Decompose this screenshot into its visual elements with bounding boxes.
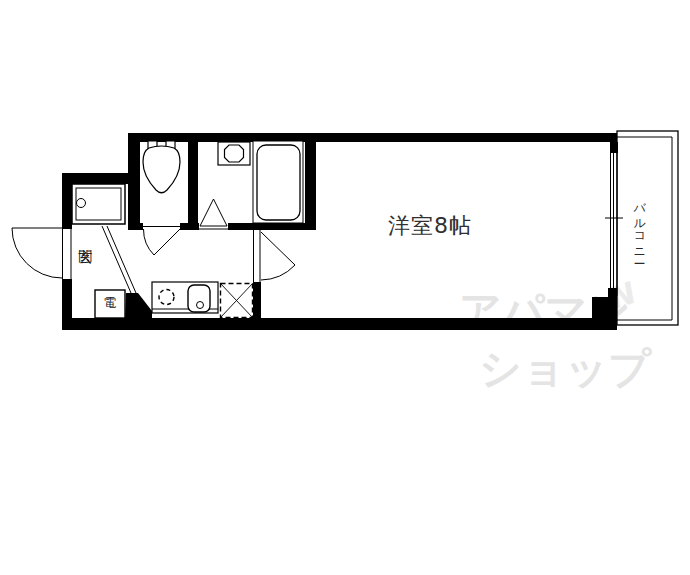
wall-top bbox=[128, 133, 617, 142]
toilet-door-swing-arc bbox=[143, 229, 154, 255]
wall-step-stub bbox=[125, 293, 152, 318]
bathroom-folding-door-icon bbox=[200, 199, 227, 226]
wall-kitchen-room-divider bbox=[253, 282, 261, 318]
wall-sanitary-bottom-c bbox=[228, 223, 315, 230]
balcony-outline bbox=[617, 131, 678, 325]
bathtub-icon bbox=[253, 141, 303, 223]
entrance-door-swing-arc bbox=[12, 228, 62, 278]
toilet-door-leaf bbox=[154, 229, 180, 255]
door-openings bbox=[63, 227, 261, 283]
sliding-window-icon bbox=[605, 146, 623, 296]
window-stub-bottom bbox=[608, 288, 617, 302]
entrance-step-divider bbox=[102, 226, 136, 293]
wall-sanitary-bottom-b bbox=[180, 223, 199, 230]
wall-sanitary-bottom-a bbox=[128, 223, 143, 230]
refrigerator-space-icon bbox=[221, 284, 253, 318]
main-room-label: 洋室8帖 bbox=[388, 214, 472, 237]
wall-bath-right bbox=[305, 141, 316, 230]
kitchen-counter bbox=[152, 282, 218, 313]
toilet-icon bbox=[143, 141, 180, 193]
kitchen-sink-icon bbox=[188, 285, 210, 312]
washbasin-icon bbox=[218, 142, 250, 165]
water-heater-label: 電 bbox=[95, 296, 125, 310]
wall-bottom bbox=[62, 318, 617, 330]
wall-left-upper bbox=[62, 184, 72, 229]
entrance-label: 玄関 bbox=[78, 238, 93, 240]
floorplan-image: アパマン N ショップ bbox=[0, 0, 690, 575]
stove-burner-icon bbox=[159, 290, 174, 305]
balcony-label: バルコニー bbox=[633, 194, 646, 259]
step-line-1 bbox=[102, 226, 131, 293]
room-door-swing-arc bbox=[261, 265, 295, 280]
floorplan-drawing bbox=[0, 0, 690, 575]
step-line-2 bbox=[107, 226, 136, 293]
wall-entrance-top bbox=[62, 173, 140, 184]
room-door-leaf bbox=[261, 232, 295, 265]
wall-toilet-bath-divider bbox=[188, 141, 198, 230]
washing-machine-pan-icon bbox=[72, 184, 125, 224]
